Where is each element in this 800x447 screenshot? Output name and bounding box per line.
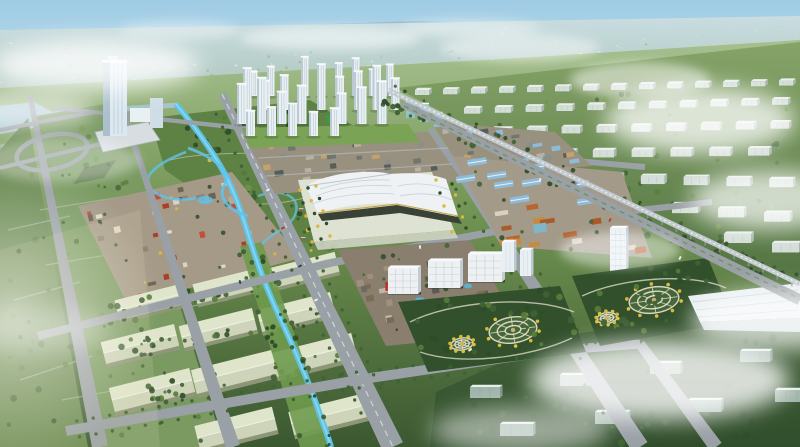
tower-side bbox=[246, 111, 248, 136]
distant-building-speck bbox=[413, 54, 416, 55]
street-tree bbox=[539, 272, 542, 275]
villa-house bbox=[301, 237, 306, 238]
lowrise-block bbox=[305, 168, 312, 173]
street-tree bbox=[397, 380, 400, 383]
formal-tree bbox=[450, 230, 453, 233]
street-tree bbox=[355, 371, 358, 374]
tree bbox=[704, 279, 709, 284]
tree bbox=[740, 411, 748, 419]
formal-tree bbox=[438, 191, 441, 194]
tree bbox=[663, 271, 668, 276]
rail-belt-tree bbox=[494, 132, 498, 136]
tree bbox=[168, 338, 172, 342]
tower-side bbox=[373, 66, 375, 110]
formal-tree bbox=[314, 184, 317, 187]
distant-building-speck bbox=[235, 65, 238, 66]
street-tree bbox=[338, 373, 341, 376]
park-pond bbox=[197, 196, 213, 204]
slab-roof bbox=[443, 87, 460, 89]
tree bbox=[208, 185, 212, 189]
rail-belt-tree bbox=[638, 203, 641, 206]
tower-side bbox=[237, 84, 239, 124]
street-tree bbox=[290, 268, 293, 271]
formal-tree bbox=[298, 188, 301, 191]
street-tree bbox=[296, 281, 299, 284]
tree bbox=[655, 189, 660, 194]
tree bbox=[226, 328, 230, 332]
distant-town-speck bbox=[643, 39, 645, 41]
tree bbox=[251, 290, 254, 293]
slab-roof bbox=[471, 86, 488, 88]
street-tree bbox=[259, 404, 262, 407]
street-tree bbox=[454, 188, 457, 191]
street-tree bbox=[322, 376, 325, 379]
tree bbox=[256, 295, 259, 298]
formal-tree bbox=[457, 204, 460, 207]
street-tree bbox=[190, 399, 193, 402]
tower-side bbox=[267, 108, 269, 136]
tree bbox=[270, 332, 274, 336]
distant-town-speck bbox=[618, 50, 620, 52]
tree bbox=[645, 422, 651, 428]
office-roof bbox=[388, 265, 421, 268]
tree bbox=[716, 224, 721, 229]
formal-tree bbox=[304, 214, 307, 217]
slab-front bbox=[724, 234, 751, 243]
slab-roof bbox=[587, 102, 606, 104]
cloud bbox=[240, 26, 420, 50]
slab-roof bbox=[562, 125, 583, 127]
distant-building-speck bbox=[201, 57, 203, 59]
tree bbox=[297, 433, 302, 438]
tower-side bbox=[309, 112, 311, 136]
tree bbox=[293, 335, 299, 341]
rail-belt-tree bbox=[512, 140, 516, 144]
street-tree bbox=[397, 425, 400, 428]
rail-belt-tree bbox=[403, 90, 407, 94]
distant-town-speck bbox=[797, 30, 799, 32]
slab-front bbox=[443, 89, 457, 94]
tower-roof bbox=[309, 111, 319, 113]
distant-tree-speck bbox=[645, 43, 647, 45]
street-tree bbox=[585, 342, 588, 345]
distant-tree-speck bbox=[458, 57, 460, 59]
slab-roof bbox=[495, 105, 514, 107]
street-tree bbox=[259, 204, 262, 207]
tree bbox=[616, 327, 620, 331]
tree bbox=[217, 200, 219, 202]
tree bbox=[434, 337, 439, 342]
tree bbox=[382, 277, 385, 280]
street-tree bbox=[292, 398, 295, 401]
slab-roof bbox=[610, 226, 629, 228]
tree bbox=[449, 365, 453, 369]
distant-building-speck bbox=[730, 37, 732, 38]
street-tree bbox=[341, 389, 344, 392]
rail-belt-tree bbox=[390, 104, 396, 110]
tree bbox=[595, 306, 602, 313]
street-tree bbox=[174, 402, 177, 405]
distant-building-speck bbox=[254, 50, 255, 52]
distant-building-speck bbox=[593, 36, 595, 37]
oldstreet-block bbox=[356, 279, 364, 287]
tree bbox=[163, 371, 166, 374]
tree bbox=[652, 301, 657, 306]
tree bbox=[290, 345, 294, 349]
tree bbox=[749, 419, 754, 424]
street-tree bbox=[353, 334, 356, 337]
street-tree bbox=[315, 256, 318, 259]
ring-spoke bbox=[462, 346, 463, 350]
rail-belt-tree bbox=[423, 99, 426, 102]
distant-building-speck bbox=[417, 53, 419, 54]
tree bbox=[539, 342, 543, 346]
tree bbox=[251, 272, 256, 277]
tree bbox=[398, 258, 400, 260]
tree bbox=[735, 433, 739, 437]
slab-front bbox=[779, 81, 793, 86]
tree bbox=[710, 285, 716, 291]
white-tower bbox=[520, 250, 531, 276]
street-tree bbox=[322, 269, 325, 272]
slab-roof bbox=[723, 80, 740, 82]
formal-tree bbox=[313, 212, 316, 215]
slab-side bbox=[500, 385, 503, 398]
tree bbox=[540, 311, 544, 315]
tree bbox=[436, 304, 442, 310]
street-tree bbox=[309, 307, 312, 310]
distant-building-speck bbox=[762, 31, 763, 32]
tree bbox=[602, 96, 609, 103]
tower-side bbox=[288, 104, 290, 136]
tree bbox=[185, 126, 190, 131]
tree bbox=[648, 266, 654, 272]
distant-town-speck bbox=[702, 36, 704, 38]
tree bbox=[271, 374, 277, 380]
tower-side bbox=[330, 109, 332, 136]
tree bbox=[248, 331, 253, 336]
street-tree bbox=[347, 385, 350, 388]
street-tree bbox=[160, 421, 163, 424]
street-tree bbox=[252, 191, 255, 194]
street-tree bbox=[226, 409, 229, 412]
tree bbox=[249, 260, 254, 265]
formal-tree bbox=[454, 193, 457, 196]
tree bbox=[212, 334, 217, 339]
rail-belt-tree bbox=[409, 114, 412, 117]
street-tree bbox=[430, 376, 433, 379]
tree bbox=[718, 234, 722, 238]
distant-building-speck bbox=[714, 38, 717, 39]
tower-roof bbox=[257, 77, 267, 79]
distant-building-speck bbox=[271, 63, 273, 65]
street-tree bbox=[359, 411, 362, 414]
tower-roof bbox=[280, 74, 289, 76]
office-roof bbox=[428, 258, 463, 261]
tree bbox=[508, 310, 513, 315]
tree bbox=[97, 184, 100, 187]
street-tree bbox=[366, 360, 369, 363]
slab-roof bbox=[526, 104, 545, 106]
street-tree bbox=[256, 388, 259, 391]
tree bbox=[531, 331, 537, 337]
tree bbox=[180, 393, 186, 399]
distant-building-speck bbox=[247, 58, 250, 59]
ring-spoke bbox=[461, 338, 462, 342]
slab-front bbox=[562, 127, 581, 133]
tree bbox=[545, 100, 548, 103]
tree bbox=[222, 116, 226, 120]
distant-building-speck bbox=[784, 27, 785, 28]
rail-belt-tree bbox=[395, 110, 400, 115]
office-side bbox=[418, 265, 421, 294]
tower-roof bbox=[391, 77, 400, 79]
tree bbox=[773, 141, 779, 147]
distant-building-speck bbox=[620, 47, 622, 49]
tree bbox=[526, 326, 529, 329]
distant-building-speck bbox=[781, 26, 784, 27]
street-tree bbox=[278, 242, 281, 245]
tower-roof bbox=[337, 92, 347, 94]
street-tree bbox=[328, 346, 331, 349]
courtyard-pool bbox=[464, 284, 472, 289]
street-tree bbox=[594, 341, 597, 344]
slab-roof bbox=[772, 241, 800, 243]
lowrise-block bbox=[263, 164, 271, 170]
tree bbox=[273, 343, 278, 348]
tree bbox=[115, 185, 121, 191]
slab-roof bbox=[499, 86, 516, 88]
tree bbox=[448, 303, 453, 308]
oldstreet-block bbox=[361, 286, 368, 293]
tree bbox=[314, 355, 317, 358]
slab-front bbox=[499, 88, 513, 93]
tree bbox=[524, 395, 528, 399]
formal-tree bbox=[301, 201, 304, 204]
tree bbox=[474, 170, 477, 173]
street-tree bbox=[227, 139, 230, 142]
slab-roof bbox=[555, 84, 572, 86]
tree bbox=[623, 319, 630, 326]
distant-building-speck bbox=[666, 27, 667, 29]
slab-front bbox=[495, 107, 511, 113]
street-tree bbox=[223, 394, 226, 397]
rail-belt-tree bbox=[464, 142, 467, 145]
formal-tree bbox=[328, 234, 331, 237]
cloud bbox=[530, 340, 790, 420]
tree bbox=[490, 305, 497, 312]
tree bbox=[685, 275, 691, 281]
tree bbox=[181, 399, 184, 402]
villa-house bbox=[299, 208, 304, 209]
tree bbox=[164, 400, 169, 405]
street-tree bbox=[496, 367, 499, 370]
tree bbox=[159, 337, 164, 342]
tree bbox=[676, 269, 681, 274]
formal-tree bbox=[464, 226, 467, 229]
tree bbox=[471, 403, 477, 409]
tree bbox=[199, 439, 203, 443]
street-tree bbox=[303, 230, 306, 233]
street-tree bbox=[240, 391, 243, 394]
tree bbox=[167, 389, 171, 393]
tower-side bbox=[257, 78, 259, 124]
tree bbox=[313, 394, 316, 397]
cloud bbox=[120, 20, 240, 40]
tree bbox=[270, 340, 274, 344]
tree bbox=[630, 322, 635, 327]
tower-roof bbox=[237, 83, 247, 85]
tree bbox=[444, 297, 450, 303]
formal-tree bbox=[310, 199, 313, 202]
street-tree bbox=[273, 385, 276, 388]
cloud bbox=[605, 86, 795, 154]
tree bbox=[571, 329, 577, 335]
tower-side bbox=[357, 88, 359, 124]
slab-front bbox=[723, 82, 737, 87]
distant-building-speck bbox=[616, 41, 618, 43]
slab-front bbox=[593, 150, 614, 157]
rail-belt-tree bbox=[525, 147, 530, 152]
tree bbox=[415, 319, 420, 324]
tree bbox=[221, 231, 226, 236]
street-tree bbox=[308, 395, 311, 398]
street-tree bbox=[246, 178, 249, 181]
lowrise-block bbox=[386, 159, 392, 164]
tree bbox=[328, 434, 331, 437]
tree bbox=[362, 273, 365, 276]
rail-belt-tree bbox=[475, 123, 478, 126]
street-tree bbox=[482, 230, 485, 233]
distant-building-speck bbox=[295, 54, 298, 56]
street-tree bbox=[193, 415, 196, 418]
slab-roof bbox=[527, 85, 544, 87]
street-tree bbox=[529, 363, 532, 366]
cloud bbox=[440, 34, 600, 62]
lowrise-block bbox=[330, 163, 337, 169]
rail-belt-tree bbox=[457, 137, 462, 142]
slab-front bbox=[471, 89, 485, 94]
tower-roof bbox=[352, 57, 360, 59]
tower-annex bbox=[130, 108, 152, 122]
tree bbox=[328, 443, 331, 446]
distant-town-speck bbox=[796, 36, 798, 38]
slab-front bbox=[772, 243, 799, 252]
street-tree bbox=[611, 425, 614, 428]
slab-front bbox=[464, 108, 480, 114]
slab-front bbox=[632, 150, 653, 157]
yellow-tree bbox=[159, 251, 163, 255]
oldstreet-block bbox=[367, 274, 373, 280]
street-tree bbox=[334, 359, 337, 362]
tree bbox=[196, 215, 200, 219]
secondary-tower bbox=[150, 98, 163, 128]
tower-roof bbox=[297, 85, 307, 87]
tree bbox=[391, 253, 395, 257]
formal-tree bbox=[442, 204, 445, 207]
tree bbox=[486, 352, 491, 357]
formal-tree bbox=[325, 222, 328, 225]
tower-side bbox=[317, 65, 319, 110]
distant-town-speck bbox=[692, 38, 694, 40]
tree bbox=[695, 260, 701, 266]
tower-side bbox=[352, 59, 354, 96]
rail-belt-tree bbox=[562, 165, 565, 168]
tree bbox=[537, 288, 543, 294]
formal-tree bbox=[310, 240, 313, 243]
slab-roof bbox=[751, 79, 768, 81]
tower-roof bbox=[357, 86, 367, 88]
aerial-city-rendering bbox=[0, 0, 800, 447]
tree bbox=[256, 309, 261, 314]
tower-roof bbox=[317, 63, 326, 65]
lowrise-block bbox=[356, 155, 362, 160]
street-tree bbox=[385, 399, 388, 402]
tower-roof bbox=[372, 65, 381, 67]
street-tree bbox=[620, 439, 623, 442]
yellow-tree bbox=[310, 249, 313, 252]
tower-side bbox=[354, 72, 356, 110]
tree bbox=[595, 97, 599, 101]
distant-town-speck bbox=[620, 49, 622, 51]
street-tree bbox=[640, 426, 643, 429]
tree bbox=[265, 335, 270, 340]
street-tree bbox=[347, 321, 350, 324]
street-tree bbox=[305, 379, 308, 382]
tower-roof bbox=[301, 56, 309, 58]
tree bbox=[543, 291, 550, 298]
street-tree bbox=[378, 368, 381, 371]
street-tree bbox=[290, 204, 293, 207]
tree bbox=[283, 319, 287, 323]
distant-building-speck bbox=[9, 42, 12, 44]
street-tree bbox=[353, 398, 356, 401]
rail-belt-tree bbox=[794, 273, 798, 277]
tree bbox=[480, 301, 486, 307]
street-tree bbox=[391, 412, 394, 415]
street-tree bbox=[240, 165, 243, 168]
tower-side bbox=[277, 92, 279, 124]
distant-building-speck bbox=[795, 33, 798, 34]
tree bbox=[180, 383, 184, 387]
slab-front bbox=[470, 387, 500, 398]
slab-front bbox=[415, 90, 429, 95]
tree bbox=[78, 125, 85, 132]
tree bbox=[271, 324, 276, 329]
distant-town-speck bbox=[778, 29, 780, 31]
tower-roof bbox=[267, 106, 277, 108]
office-side bbox=[460, 258, 463, 288]
street-tree bbox=[275, 401, 278, 404]
tower-roof bbox=[335, 76, 344, 78]
tree bbox=[597, 290, 603, 296]
distant-building-speck bbox=[371, 61, 373, 63]
tree bbox=[567, 316, 574, 323]
street-tree bbox=[303, 294, 306, 297]
tree bbox=[716, 158, 720, 162]
distant-building-speck bbox=[416, 54, 418, 56]
yellow-tree bbox=[175, 207, 178, 210]
street-tree bbox=[413, 378, 416, 381]
tree bbox=[321, 415, 326, 420]
tower-roof bbox=[377, 80, 387, 82]
office-roof bbox=[468, 251, 505, 254]
formal-tree bbox=[306, 186, 309, 189]
distant-tree-speck bbox=[267, 55, 270, 58]
tree bbox=[556, 294, 563, 301]
distant-building-speck bbox=[704, 25, 705, 27]
tree bbox=[515, 356, 519, 360]
